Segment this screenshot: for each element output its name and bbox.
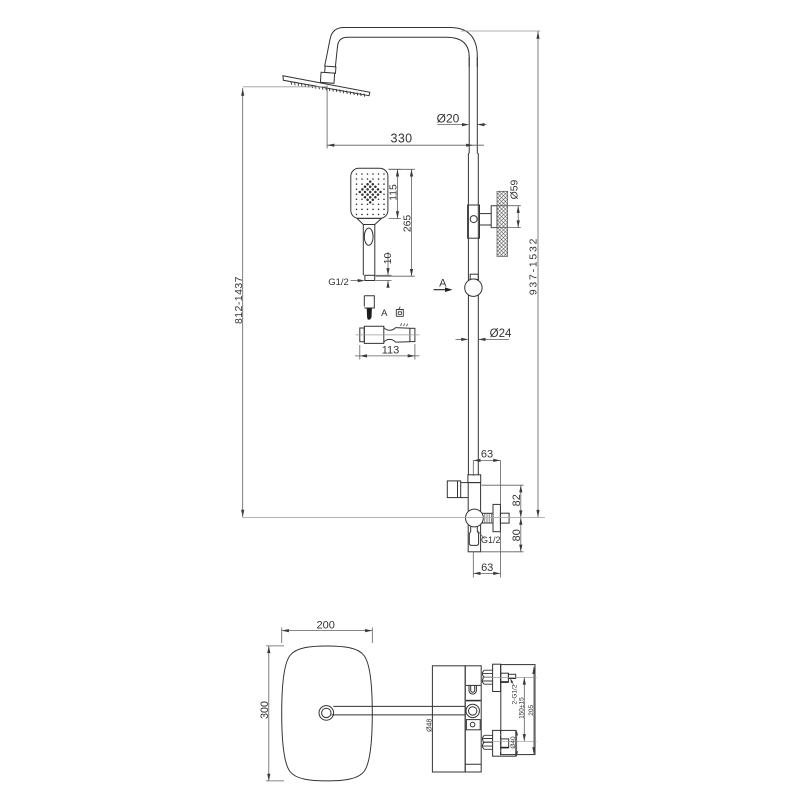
svg-text:Ø24: Ø24 [490, 328, 512, 340]
svg-text:2-G1/2: 2-G1/2 [511, 684, 518, 704]
svg-text:205: 205 [528, 704, 535, 715]
svg-text:300: 300 [259, 701, 271, 719]
svg-text:G1/2: G1/2 [328, 277, 349, 288]
svg-text:10: 10 [383, 253, 394, 265]
svg-text:63: 63 [481, 562, 493, 574]
svg-text:937-1532: 937-1532 [528, 237, 539, 295]
svg-text:115: 115 [389, 184, 400, 201]
svg-text:A: A [381, 308, 388, 319]
svg-text:80: 80 [511, 529, 523, 541]
svg-text:63: 63 [481, 449, 493, 461]
svg-text:Ø48: Ø48 [427, 719, 434, 732]
svg-text:113: 113 [382, 345, 400, 357]
svg-text:82: 82 [511, 494, 523, 506]
svg-text:Ø59: Ø59 [509, 179, 520, 199]
svg-text:A: A [439, 277, 447, 289]
svg-text:812-1437: 812-1437 [234, 276, 245, 324]
svg-text:200: 200 [317, 620, 335, 632]
svg-text:Ø20: Ø20 [437, 112, 460, 126]
svg-text:150±15: 150±15 [519, 697, 526, 719]
svg-text:330: 330 [390, 132, 412, 146]
svg-text:265: 265 [403, 215, 414, 233]
svg-text:G1/2: G1/2 [481, 535, 501, 545]
svg-text:Ø40: Ø40 [510, 736, 517, 749]
